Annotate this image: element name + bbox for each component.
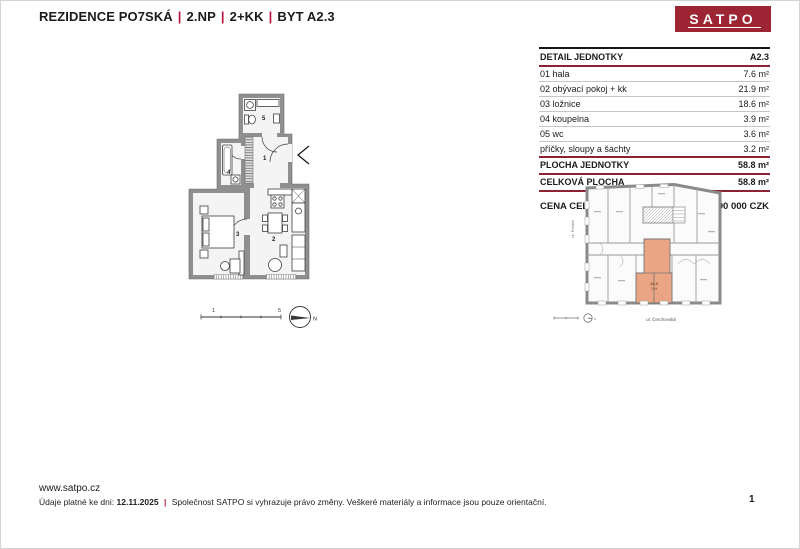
table-header-value: A2.3 [750,52,769,62]
compass-north-label: N [313,317,317,323]
scale-bar [201,315,281,320]
row-value: 3.9 m² [743,114,769,124]
document-page: REZIDENCE PO7SKÁ|2.NP|2+KK|BYT A2.3 SATP… [0,0,800,549]
row-label: příčky, sloupy a šachty [540,144,630,154]
toilet [249,115,256,124]
bath-washer [231,175,240,184]
counter [292,203,305,232]
kitchen-counter [268,189,292,195]
website-url: www.satpo.cz [39,483,100,494]
mini-compass-north: N [594,317,596,321]
core-shaft [643,207,673,223]
note-prefix: Údaje platné ke dni: [39,497,114,507]
floor-plan: 1 2 3 4 5 1 5 N [184,89,329,339]
scale-label-end: 5 [278,308,281,314]
logo-underline [688,27,761,29]
unit-type-label: 2+kk [651,287,658,291]
side-table [280,245,287,257]
nightstand [200,206,208,214]
table-row: 02 obývací pokoj + kk 21.9 m² [539,82,770,97]
shelf [257,100,279,107]
title-separator: | [221,9,225,24]
title-separator: | [178,9,182,24]
scale-label-start: 1 [212,308,215,314]
toilet-tank [245,115,249,124]
table-header: DETAIL JEDNOTKY A2.3 [539,47,770,67]
row-value: 7.6 m² [743,69,769,79]
title-floor: 2.NP [187,9,216,24]
nightstand [200,250,208,258]
row-value: 3.6 m² [743,129,769,139]
chair [221,262,230,271]
sofa [292,235,305,271]
row-label: 04 koupelna [540,114,589,124]
unit-code-label: A2.3 [650,282,658,286]
title-unit: BYT A2.3 [277,9,334,24]
table-row: příčky, sloupy a šachty 3.2 m² [539,142,770,156]
dining-table [268,213,282,233]
note-separator: | [164,497,166,507]
title-layout: 2+KK [230,9,264,24]
compass: N [290,307,318,328]
entrance-arrow [298,146,309,164]
street-label-left: ul. Polská [570,220,575,238]
stairs [673,207,685,223]
row-label: 03 ložnice [540,99,581,109]
table-row: 01 hala 7.6 m² [539,67,770,82]
valid-date: 12.11.2025 [117,497,159,507]
row-label: 01 hala [540,69,570,79]
site-plan: A2.3 2+kk ul. Polská ul. Čerchovská N [540,181,772,329]
wc-sink [274,114,280,123]
note-text: Společnost SATPO si vyhrazuje právo změn… [172,497,547,507]
desk [230,259,240,273]
row-value: 18.6 m² [738,99,769,109]
street-label-bottom: ul. Čerchovská [646,316,676,322]
page-title: REZIDENCE PO7SKÁ|2.NP|2+KK|BYT A2.3 [39,9,335,24]
page-number: 1 [749,494,755,505]
row-value: 21.9 m² [738,84,769,94]
shaft-hatch [245,137,253,183]
table-row: 05 wc 3.6 m² [539,127,770,142]
title-project: REZIDENCE PO7SKÁ [39,9,173,24]
mini-scale-bar [554,317,578,320]
total-label: PLOCHA JEDNOTKY [540,160,629,170]
row-value: 3.2 m² [743,144,769,154]
round-table [269,259,282,272]
table-row: 03 ložnice 18.6 m² [539,97,770,112]
table-row: 04 koupelna 3.9 m² [539,112,770,127]
row-label: 02 obývací pokoj + kk [540,84,627,94]
table-header-label: DETAIL JEDNOTKY [540,52,623,62]
table-total-row: PLOCHA JEDNOTKY 58.8 m² [539,156,770,175]
total-value: 58.8 m² [738,160,769,170]
title-separator: | [269,9,273,24]
washer [245,100,256,111]
mini-compass: N [584,314,596,322]
footer-disclaimer: Údaje platné ke dni: 12.11.2025 | Společ… [39,497,547,507]
logo-text: SATPO [689,11,756,27]
stove [271,195,284,208]
satpo-logo: SATPO [675,6,771,32]
row-label: 05 wc [540,129,564,139]
